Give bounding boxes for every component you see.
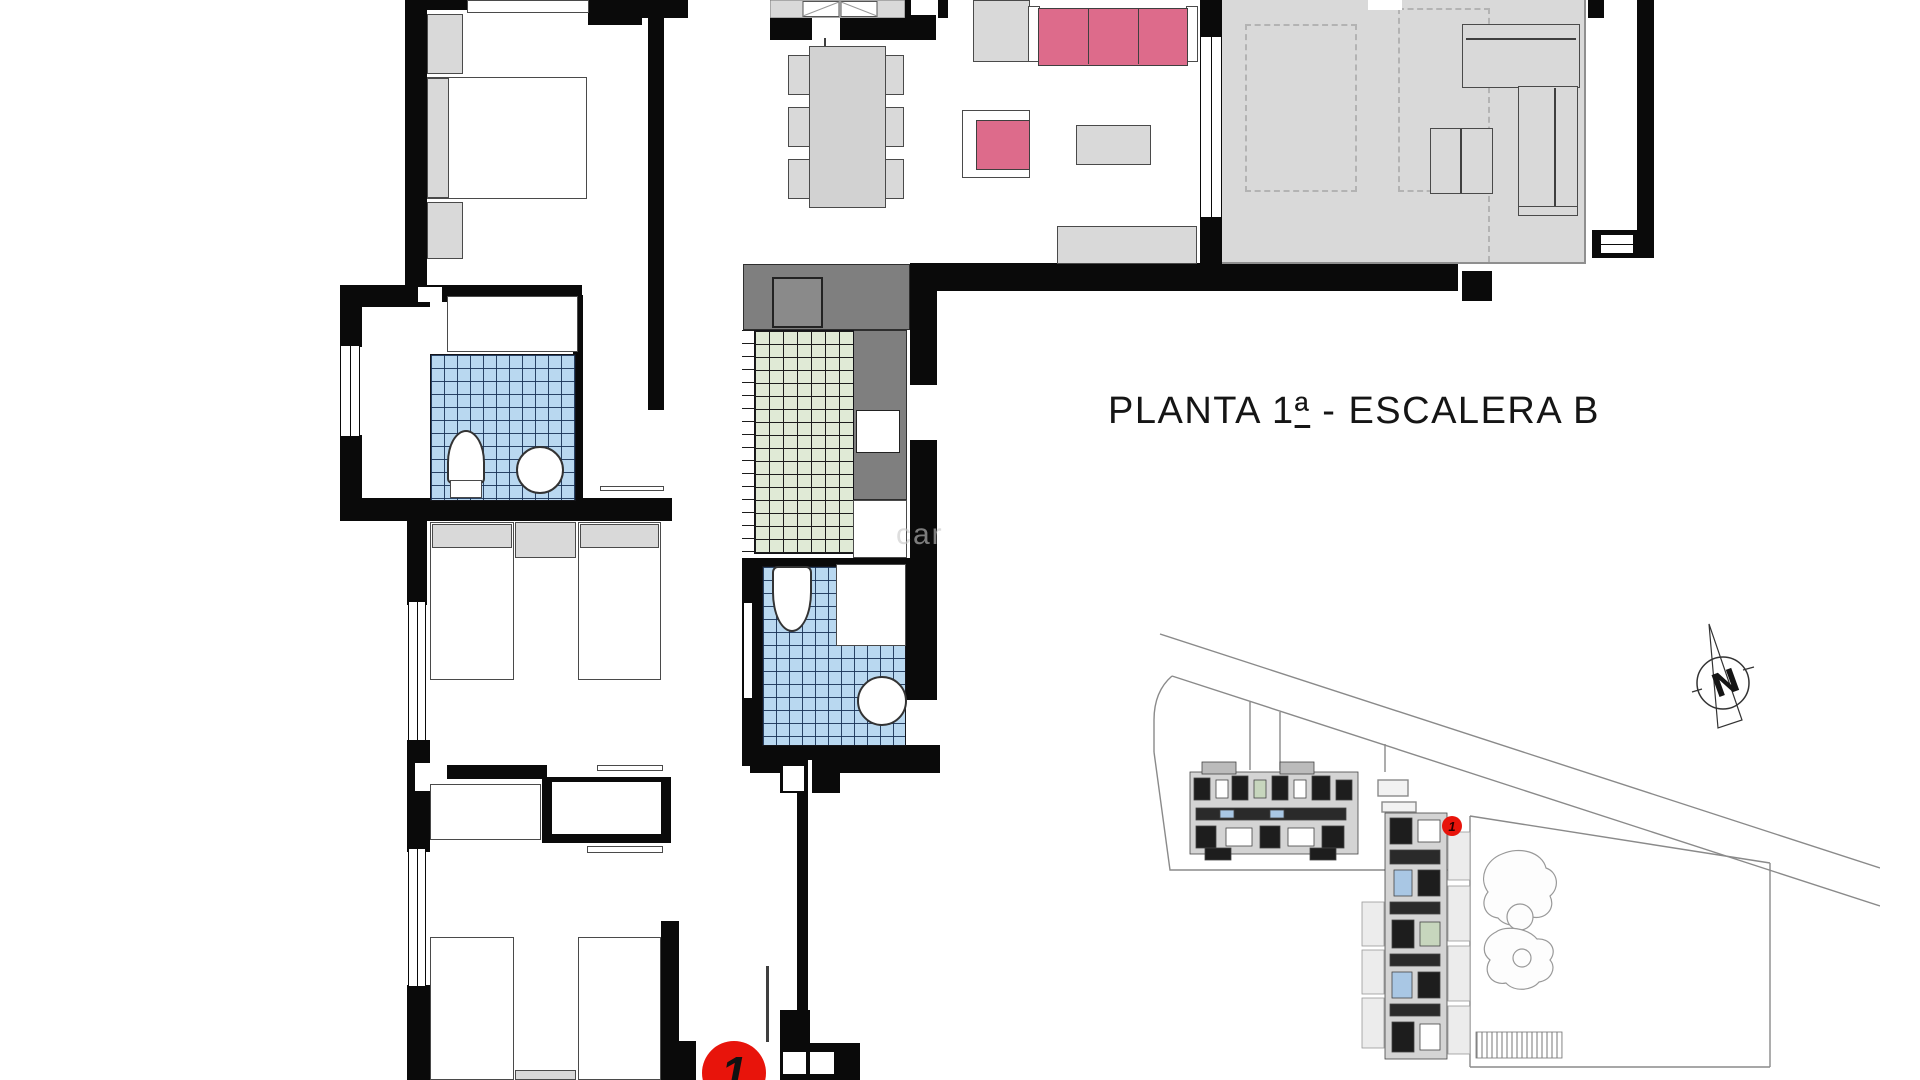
wall-pillar [1462, 271, 1492, 301]
nightstand [427, 14, 463, 74]
shelf-line [597, 765, 663, 771]
bed-pillow [580, 524, 659, 548]
site-building-a [1190, 762, 1358, 860]
plan-title-ordinal: ª [1295, 390, 1311, 432]
door-gap [808, 760, 812, 793]
door-frame-opening [783, 766, 804, 791]
shelf-line [587, 846, 663, 853]
wall-segment [750, 745, 940, 773]
wall-segment [340, 498, 672, 521]
plan-title-prefix: PLANTA 1 [1108, 390, 1295, 432]
nightstand [515, 1070, 576, 1080]
wall-segment [1200, 216, 1222, 264]
kitchen-tile-lines [742, 330, 754, 554]
site-unit-badge-label: 1 [1448, 819, 1455, 834]
wall-segment [447, 765, 547, 779]
unit-number-label: 1 [721, 1046, 747, 1080]
wall-segment [1588, 0, 1604, 18]
wall-segment [797, 793, 808, 1013]
kitchen-appliance [772, 277, 823, 328]
wall-segment [340, 435, 362, 500]
bathroom-vanity [447, 296, 578, 352]
double-bed [427, 77, 587, 199]
terrace-lounger-line [1554, 88, 1556, 208]
shower-tray [836, 564, 906, 646]
wall-segment [588, 0, 642, 25]
window [340, 345, 360, 437]
terrace-lounger-foot [1518, 206, 1578, 216]
wardrobe [467, 0, 589, 13]
site-unit-badge: 1 [1442, 816, 1462, 836]
wall-notch [911, 0, 937, 15]
door-opening [418, 287, 442, 302]
washbasin [516, 446, 564, 494]
terrace-lounger [1462, 24, 1580, 88]
dining-table [809, 46, 886, 208]
door-leaf [766, 966, 769, 1042]
terrace-lounger [1518, 86, 1578, 210]
single-bed [430, 937, 514, 1080]
wall-segment [407, 985, 430, 1080]
plan-title-suffix: - ESCALERA B [1310, 390, 1600, 432]
wall-segment [910, 285, 937, 385]
wardrobe [430, 784, 541, 840]
corner-window [1600, 234, 1634, 254]
sliding-door [1200, 36, 1222, 218]
door-frame [812, 760, 840, 793]
wall-segment [405, 0, 427, 285]
sofa-cushion-line [1138, 9, 1139, 64]
toilet-base [450, 480, 482, 498]
wall-segment [668, 1041, 696, 1080]
shaft-slot [744, 603, 752, 698]
nightstand [515, 522, 576, 558]
site-plan: N 1 [1130, 620, 1880, 1080]
kitchen-sink [856, 410, 900, 453]
wall-segment [407, 740, 430, 852]
kitchen-tiled-floor [754, 330, 854, 554]
door-frame-opening [810, 1052, 834, 1074]
wall-segment [425, 0, 469, 10]
sideboard [1057, 226, 1197, 264]
wall-segment [905, 558, 937, 700]
bed-pillow [432, 524, 512, 548]
kitchen-counter [743, 264, 910, 330]
wall-segment [938, 0, 948, 18]
armchair [976, 120, 1030, 170]
plan-title: PLANTA 1ª - ESCALERA B [1108, 390, 1600, 433]
wall-segment [407, 498, 427, 605]
terrace-side-table-line [1460, 129, 1462, 193]
single-bed [578, 937, 661, 1080]
compass-north-icon: N [1692, 624, 1754, 728]
site-hatched-area [1476, 1032, 1562, 1058]
compass-north-letter: N [1707, 661, 1745, 706]
wall-segment [648, 0, 664, 410]
site-building-b [1385, 813, 1447, 1059]
window [408, 601, 426, 741]
terrace-lounger-line [1466, 38, 1576, 40]
wall-segment [340, 285, 362, 347]
watermark-text: car [896, 518, 944, 552]
wall-segment [910, 263, 1458, 291]
site-pools [1484, 850, 1557, 989]
door-threshold [600, 486, 664, 491]
closet-interior [552, 782, 661, 834]
bed-headboard [427, 78, 449, 198]
terrace-dashed-line [1488, 196, 1490, 262]
door-frame-opening [783, 1052, 806, 1074]
entry-door [770, 0, 905, 18]
floorplan-sheet: 1 PLANTA 1ª - ESCALERA B car [0, 0, 1920, 1080]
wall-segment [1637, 0, 1654, 235]
sofa [1038, 8, 1188, 66]
window [408, 848, 426, 987]
sofa-cushion-line [1088, 9, 1089, 64]
coffee-table [1076, 125, 1151, 165]
nightstand [427, 202, 463, 259]
side-table [973, 0, 1030, 62]
wall-segment [1200, 0, 1222, 38]
unit-number-badge: 1 [702, 1041, 766, 1080]
door-opening [812, 18, 840, 40]
washbasin [857, 676, 907, 726]
terrace-awning-outline [1245, 24, 1357, 192]
terrace-top-notch [1368, 0, 1402, 10]
